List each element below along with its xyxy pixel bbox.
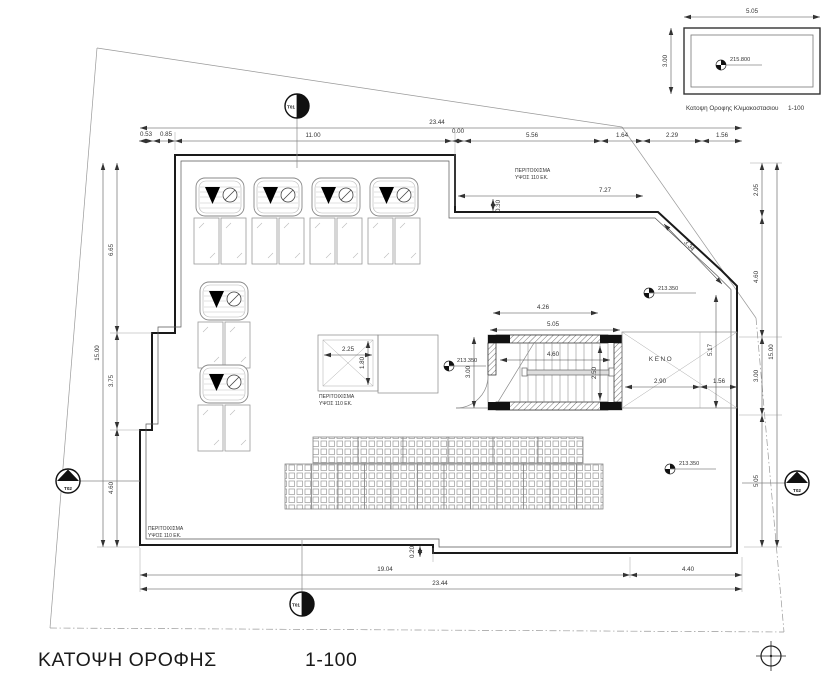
hvac-unit <box>198 282 250 368</box>
survey-target-icon <box>756 641 786 671</box>
dim: 0.53 <box>140 131 153 138</box>
dim: 15.00 <box>768 344 775 360</box>
level-value: 213.350 <box>658 286 678 292</box>
stair-handrail <box>524 370 612 375</box>
stair-wall-left <box>488 343 496 375</box>
parapet-label-bottom: ΠΕΡΙΤΟΙΧΙΣΜΑ <box>148 526 184 532</box>
dim: 3.00 <box>753 369 760 382</box>
parapet-label-top: ΠΕΡΙΤΟΙΧΙΣΜΑ <box>515 168 551 174</box>
dim: 5.05 <box>547 321 560 328</box>
drawing-scale: 1-100 <box>305 649 357 671</box>
level-marker-icon <box>716 60 726 70</box>
dim: 4.60 <box>108 481 115 494</box>
dim: 4.60 <box>753 270 760 283</box>
dim: 0.30 <box>495 199 502 212</box>
svg-text:ΥΨΟΣ 110 ΕΚ.: ΥΨΟΣ 110 ΕΚ. <box>319 401 352 407</box>
stair-wall-bottom <box>496 402 608 410</box>
dim: 5.17 <box>707 343 714 356</box>
inset-stair-roof-plan: 5.05 3.00 215.800 Κατοψη Οροφης Κλιμακοσ… <box>662 8 820 112</box>
dim: 0.20 <box>409 545 416 558</box>
inset-caption: Κατοψη Οροφης Κλιμακοστασιου <box>686 105 779 112</box>
hvac-unit <box>310 178 362 264</box>
dim: 2.90 <box>654 378 667 385</box>
dim: 5.05 <box>753 474 760 487</box>
page-title: ΚΑΤΟΨΗ ΟΡΟΦΗΣ <box>38 649 217 671</box>
dim: 1.56 <box>716 132 729 139</box>
stair-wall-top <box>496 335 608 343</box>
dim: 1.80 <box>359 356 366 369</box>
level-value: 213.350 <box>679 461 699 467</box>
title-block: ΚΑΤΟΨΗ ΟΡΟΦΗΣ 1-100 <box>38 649 357 671</box>
hvac-unit <box>194 178 246 264</box>
dim: 3.34 <box>682 239 696 253</box>
dim: 0.85 <box>160 131 173 138</box>
door-swing-arc <box>456 376 488 408</box>
dim: 4.26 <box>537 304 550 311</box>
hvac-unit <box>368 178 420 264</box>
inset-dim-width: 5.05 <box>746 8 759 15</box>
stair-wall-right <box>614 343 622 402</box>
dim: 4.40 <box>682 566 695 573</box>
section-marker-t02-left: T02 <box>64 486 72 491</box>
inset-dim-height: 3.00 <box>662 54 669 67</box>
section-marker-t01-top: T01 <box>287 105 295 110</box>
dim: 4.60 <box>547 351 560 358</box>
dim: 5.56 <box>526 132 539 139</box>
section-marker-t02-right: T02 <box>793 488 801 493</box>
hvac-units <box>194 178 420 451</box>
inset-scale: 1-100 <box>788 105 805 112</box>
solar-row-lower <box>285 464 603 509</box>
dim: 23.44 <box>432 580 448 587</box>
dim: 3.00 <box>465 365 472 378</box>
architectural-drawing: ΚΕΝΟ ΠΕΡΙΤΟΙΧΙΣΜΑ ΥΨΟΣ 110 ΕΚ. ΠΕΡΙΤΟΙΧΙ… <box>0 0 828 682</box>
dim: 1.56 <box>713 378 726 385</box>
dim: 15.00 <box>94 345 101 361</box>
dim: 19.04 <box>377 566 393 573</box>
inset-level-value: 215.800 <box>730 57 750 63</box>
svg-text:ΥΨΟΣ 110 ΕΚ.: ΥΨΟΣ 110 ΕΚ. <box>148 533 181 539</box>
dim: 6.65 <box>108 243 115 256</box>
dim: 2.05 <box>753 183 760 196</box>
parapet-label-skylight: ΠΕΡΙΤΟΙΧΙΣΜΑ <box>319 394 355 400</box>
dim: 3.75 <box>108 374 115 387</box>
solar-row-upper <box>313 437 583 463</box>
hvac-unit <box>198 365 250 451</box>
dim: 0.00 <box>452 128 465 135</box>
roof-plan-svg: ΚΕΝΟ ΠΕΡΙΤΟΙΧΙΣΜΑ ΥΨΟΣ 110 ΕΚ. ΠΕΡΙΤΟΙΧΙ… <box>0 0 828 682</box>
dim: 2.25 <box>342 346 355 353</box>
solar-panels <box>285 437 603 509</box>
void-area: ΚΕΝΟ <box>622 332 737 408</box>
hvac-unit <box>252 178 304 264</box>
skylight <box>318 335 438 393</box>
dim: 2.29 <box>666 132 679 139</box>
dim-top-total: 23.44 <box>429 119 445 126</box>
dim: 11.00 <box>305 132 321 139</box>
dim: 2.50 <box>591 366 598 379</box>
svg-text:ΥΨΟΣ 110 ΕΚ.: ΥΨΟΣ 110 ΕΚ. <box>515 175 548 181</box>
section-marker-t01-bottom: T01 <box>292 603 300 608</box>
dim: 1.64 <box>616 132 629 139</box>
dim: 7.27 <box>599 187 612 194</box>
void-label: ΚΕΝΟ <box>649 356 673 363</box>
